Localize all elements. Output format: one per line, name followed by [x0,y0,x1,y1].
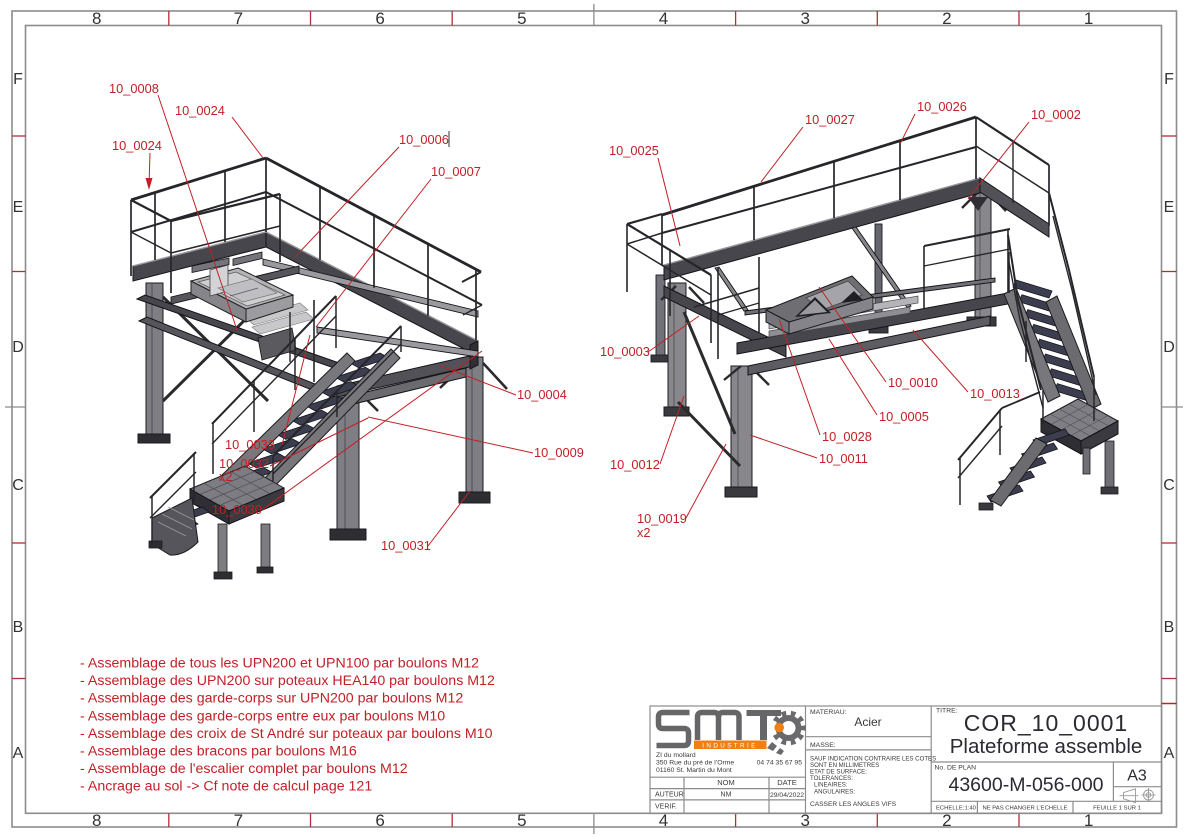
svg-text:NM: NM [721,792,732,799]
svg-text:INDUSTRIE: INDUSTRIE [702,742,758,749]
svg-text:10_0025: 10_0025 [609,143,659,158]
svg-text:ECHELLE:1:40: ECHELLE:1:40 [936,806,977,812]
svg-text:DATE: DATE [777,778,796,787]
svg-text:- Assemblage de l'escalier com: - Assemblage de l'escalier complet par b… [80,761,408,777]
svg-text:10_0027: 10_0027 [805,112,855,127]
svg-text:10_0019: 10_0019 [637,511,687,526]
svg-text:AUTEUR: AUTEUR [655,792,684,799]
svg-text:VERIF.: VERIF. [655,804,677,811]
svg-text:F: F [1164,71,1174,88]
svg-text:8: 8 [92,811,101,830]
svg-text:NE PAS CHANGER L’ECHELLE: NE PAS CHANGER L’ECHELLE [982,806,1067,812]
svg-text:8: 8 [92,9,101,28]
svg-text:ZI du mollard: ZI du mollard [656,752,696,759]
svg-text:- Assemblage des bracons par b: - Assemblage des bracons par boulons M16 [80,744,357,760]
svg-text:COR_10_0001: COR_10_0001 [964,710,1128,736]
svg-text:10_0033: 10_0033 [225,437,275,452]
svg-text:10_0006: 10_0006 [399,132,449,147]
svg-text:C: C [1163,477,1175,494]
svg-text:3: 3 [800,9,809,28]
svg-text:10_0024: 10_0024 [112,138,162,153]
svg-text:- Assemblage des croix de St A: - Assemblage des croix de St André sur p… [80,726,493,742]
svg-text:ANGULAIRES:: ANGULAIRES: [814,789,855,796]
svg-text:5: 5 [517,9,526,28]
svg-text:10_0002: 10_0002 [1031,107,1081,122]
svg-text:E: E [13,199,24,216]
svg-text:B: B [13,619,24,636]
svg-text:10_0011: 10_0011 [819,451,868,466]
svg-text:10_0028: 10_0028 [822,429,872,444]
svg-text:Acier: Acier [854,715,881,729]
svg-text:MASSE:: MASSE: [810,742,836,749]
svg-text:NOM: NOM [717,778,735,787]
svg-text:10_0026: 10_0026 [917,99,967,114]
svg-text:6: 6 [375,811,384,830]
svg-text:x2: x2 [219,469,233,484]
svg-text:2: 2 [942,9,951,28]
svg-text:10_0004: 10_0004 [517,387,567,402]
svg-text:A: A [1164,745,1175,762]
svg-text:D: D [12,339,24,356]
svg-text:10_0031: 10_0031 [381,538,431,553]
svg-text:6: 6 [375,9,384,28]
svg-text:43600-M-056-000: 43600-M-056-000 [948,774,1103,796]
svg-text:10_0012: 10_0012 [610,457,660,472]
svg-text:No. DE PLAN: No. DE PLAN [935,765,977,772]
svg-text:- Assemblage de tous les UPN20: - Assemblage de tous les UPN200 et UPN10… [80,656,479,672]
svg-text:04 74 35 67 95: 04 74 35 67 95 [757,760,803,767]
svg-text:7: 7 [234,9,243,28]
svg-text:TITRE:: TITRE: [936,708,958,715]
svg-text:x2: x2 [637,525,651,540]
svg-text:350 Rue du pré de l’Orme: 350 Rue du pré de l’Orme [656,760,734,767]
svg-text:10_0007: 10_0007 [431,164,481,179]
svg-text:- Ancrage au sol -> Cf note de: - Ancrage au sol -> Cf note de calcul pa… [80,779,372,795]
svg-text:10_0013: 10_0013 [970,386,1020,401]
svg-text:C: C [12,477,24,494]
svg-text:CASSER LES ANGLES VIFS: CASSER LES ANGLES VIFS [810,801,897,808]
svg-text:D: D [1163,339,1175,356]
svg-text:5: 5 [517,811,526,830]
svg-text:- Assemblage des UPN200 sur po: - Assemblage des UPN200 sur poteaux HEA1… [80,673,495,689]
svg-text:10_0010: 10_0010 [888,375,938,390]
svg-text:LINEAIRES:: LINEAIRES: [814,782,848,789]
svg-text:10_0008: 10_0008 [109,81,159,96]
svg-text:29/04/2022: 29/04/2022 [770,792,804,799]
svg-text:7: 7 [234,811,243,830]
svg-text:FEUILLE 1 SUR 1: FEUILLE 1 SUR 1 [1093,806,1141,812]
svg-text:10_0009: 10_0009 [534,445,584,460]
svg-text:- Assemblage des garde-corps s: - Assemblage des garde-corps sur UPN200 … [80,691,463,707]
svg-text:- Assemblage des garde-corps e: - Assemblage des garde-corps entre eux p… [80,708,445,724]
svg-text:F: F [13,71,23,88]
svg-text:10_0030: 10_0030 [212,502,262,517]
svg-text:MATERIAU:: MATERIAU: [810,709,847,716]
svg-text:E: E [1164,199,1175,216]
svg-text:4: 4 [659,9,668,28]
svg-text:1: 1 [1084,9,1093,28]
svg-text:10_0003: 10_0003 [600,344,650,359]
svg-text:A: A [13,745,24,762]
svg-text:Plateforme assemble: Plateforme assemble [950,735,1143,758]
svg-text:01160 St. Martin du Mont: 01160 St. Martin du Mont [656,767,732,774]
svg-text:A3: A3 [1127,768,1147,785]
svg-text:B: B [1164,619,1175,636]
svg-text:10_0005: 10_0005 [879,409,929,424]
svg-text:10_0024: 10_0024 [175,103,225,118]
